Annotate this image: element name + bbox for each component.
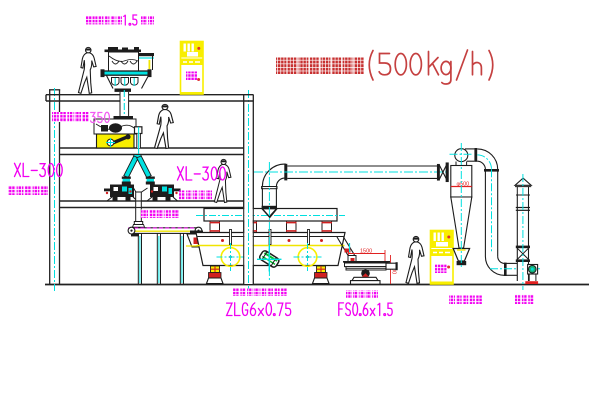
svg-text:1500: 1500 — [360, 249, 372, 255]
svg-text:φ500: φ500 — [457, 182, 470, 188]
